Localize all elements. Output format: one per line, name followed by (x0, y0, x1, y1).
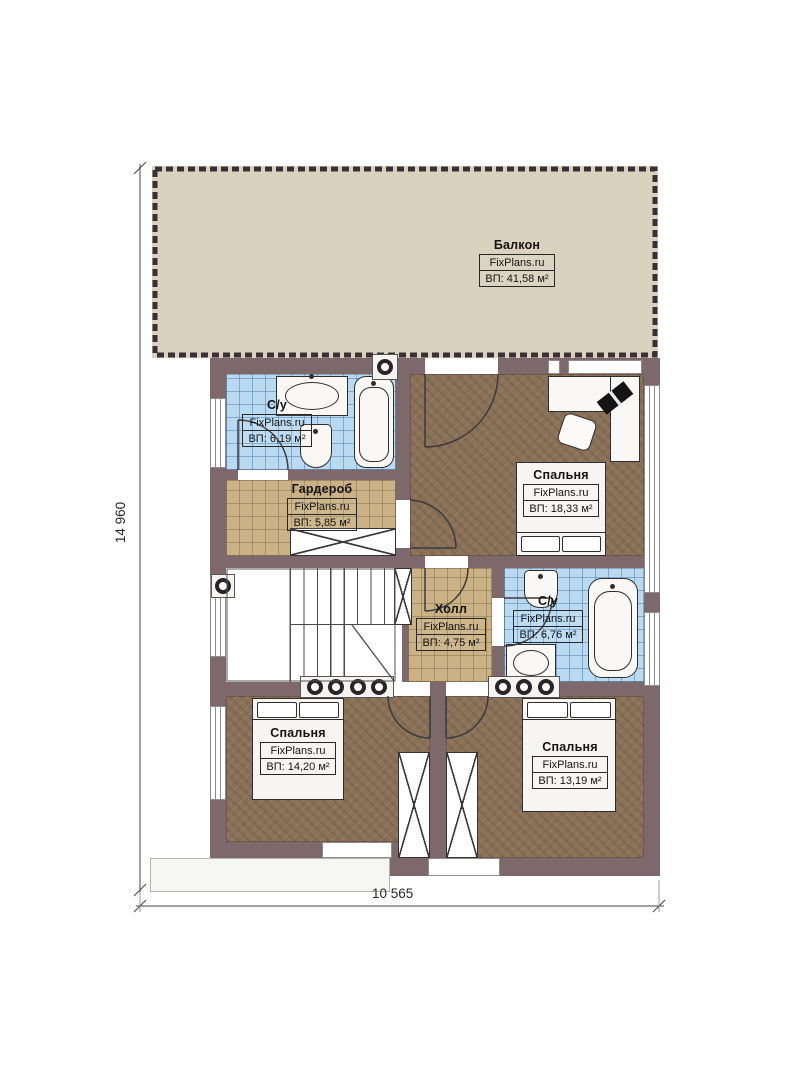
balcony-floor (152, 166, 658, 358)
wardrobe-door-gap (396, 500, 410, 548)
room-name: Спальня (524, 740, 616, 754)
bedroom-top-door-gap (425, 556, 468, 568)
room-area: ВП: 18,33 м² (524, 501, 597, 516)
bathtub-top-left (354, 376, 394, 468)
brand-watermark: FixPlans.ru (514, 611, 581, 627)
dimension-height-label: 14 960 (113, 502, 128, 543)
brand-watermark: FixPlans.ru (533, 757, 606, 773)
stairs-railing-wall (402, 625, 408, 682)
dim-tick (134, 162, 146, 174)
dim-tick (653, 900, 665, 912)
room-area: ВП: 14,20 м² (261, 759, 334, 774)
room-name: Балкон (467, 238, 567, 252)
room-label-balcony: Балкон FixPlans.ru ВП: 41,58 м² (467, 238, 567, 287)
window-right-2 (644, 612, 660, 686)
window-top-1 (548, 360, 560, 374)
room-label-bedroom-bottom-right: Спальня FixPlans.ru ВП: 13,19 м² (524, 740, 616, 789)
pipe-icon (328, 679, 344, 695)
wall-bedroom-partition (430, 682, 446, 858)
closet-br (446, 752, 478, 858)
room-label-bedroom-top-right: Спальня FixPlans.ru ВП: 18,33 м² (514, 468, 608, 517)
dim-tick (134, 884, 146, 896)
bathtub-right (588, 578, 638, 678)
brand-watermark: FixPlans.ru (480, 255, 553, 271)
dim-tick (134, 900, 146, 912)
window-top-2 (568, 360, 642, 374)
room-label-bathroom-right: С/у FixPlans.ru ВП: 6,76 м² (508, 594, 588, 643)
pipe-icon (495, 679, 511, 695)
room-name: С/у (508, 594, 588, 608)
stairs-lower-flight (290, 625, 352, 682)
brand-watermark: FixPlans.ru (243, 415, 310, 431)
wall-wardrobe-stairs (226, 556, 396, 568)
bedroom-br-door-gap (446, 682, 488, 696)
wardrobe-closet (290, 528, 396, 556)
room-area: ВП: 5,85 м² (288, 515, 355, 530)
room-name: С/у (232, 398, 322, 412)
vent-pipe-top (372, 354, 398, 380)
brand-watermark: FixPlans.ru (261, 743, 334, 759)
pipe-icon (307, 679, 323, 695)
window-left-3 (210, 706, 226, 800)
balcony-door-gap (425, 358, 498, 374)
room-name: Холл (410, 602, 492, 616)
bedroom-bl-door-gap (388, 682, 430, 696)
pipe-risers-right (488, 676, 560, 698)
room-name: Спальня (252, 726, 344, 740)
room-area: ВП: 6,76 м² (514, 627, 581, 642)
brand-watermark: FixPlans.ru (288, 499, 355, 515)
brand-watermark: FixPlans.ru (524, 485, 597, 501)
terrace-ledge (150, 858, 390, 892)
pipe-icon (538, 679, 554, 695)
room-label-hall: Холл FixPlans.ru ВП: 4,75 м² (410, 602, 492, 651)
window-bottom-2 (428, 858, 500, 876)
room-label-bathroom-top: С/у FixPlans.ru ВП: 6,19 м² (232, 398, 322, 447)
bathroom-right-door-gap (492, 598, 504, 646)
room-area: ВП: 41,58 м² (480, 271, 553, 286)
pipe-icon (350, 679, 366, 695)
room-area: ВП: 13,19 м² (533, 773, 606, 788)
brand-watermark: FixPlans.ru (417, 619, 484, 635)
pipe-icon (516, 679, 532, 695)
room-name: Спальня (514, 468, 608, 482)
pipe-icon (371, 679, 387, 695)
floor-plan-canvas: Балкон FixPlans.ru ВП: 41,58 м² С/у FixP… (0, 0, 792, 1080)
room-name: Гардероб (272, 482, 372, 496)
room-label-wardrobe: Гардероб FixPlans.ru ВП: 5,85 м² (272, 482, 372, 531)
window-right-1 (644, 385, 660, 593)
stairs-upper-flight (290, 568, 396, 625)
closet-bl (398, 752, 430, 858)
room-label-bedroom-bottom-left: Спальня FixPlans.ru ВП: 14,20 м² (252, 726, 344, 775)
bathroom-top-door-gap (238, 470, 288, 480)
pipe-risers-left (300, 676, 394, 698)
window-bottom-1 (322, 842, 392, 858)
room-area: ВП: 6,19 м² (243, 431, 310, 446)
stairs-cut-line (352, 625, 394, 681)
dimension-width-label: 10 565 (372, 886, 413, 901)
window-left-1 (210, 398, 226, 468)
vent-pipe-stairs (211, 574, 235, 598)
room-area: ВП: 4,75 м² (417, 635, 484, 650)
